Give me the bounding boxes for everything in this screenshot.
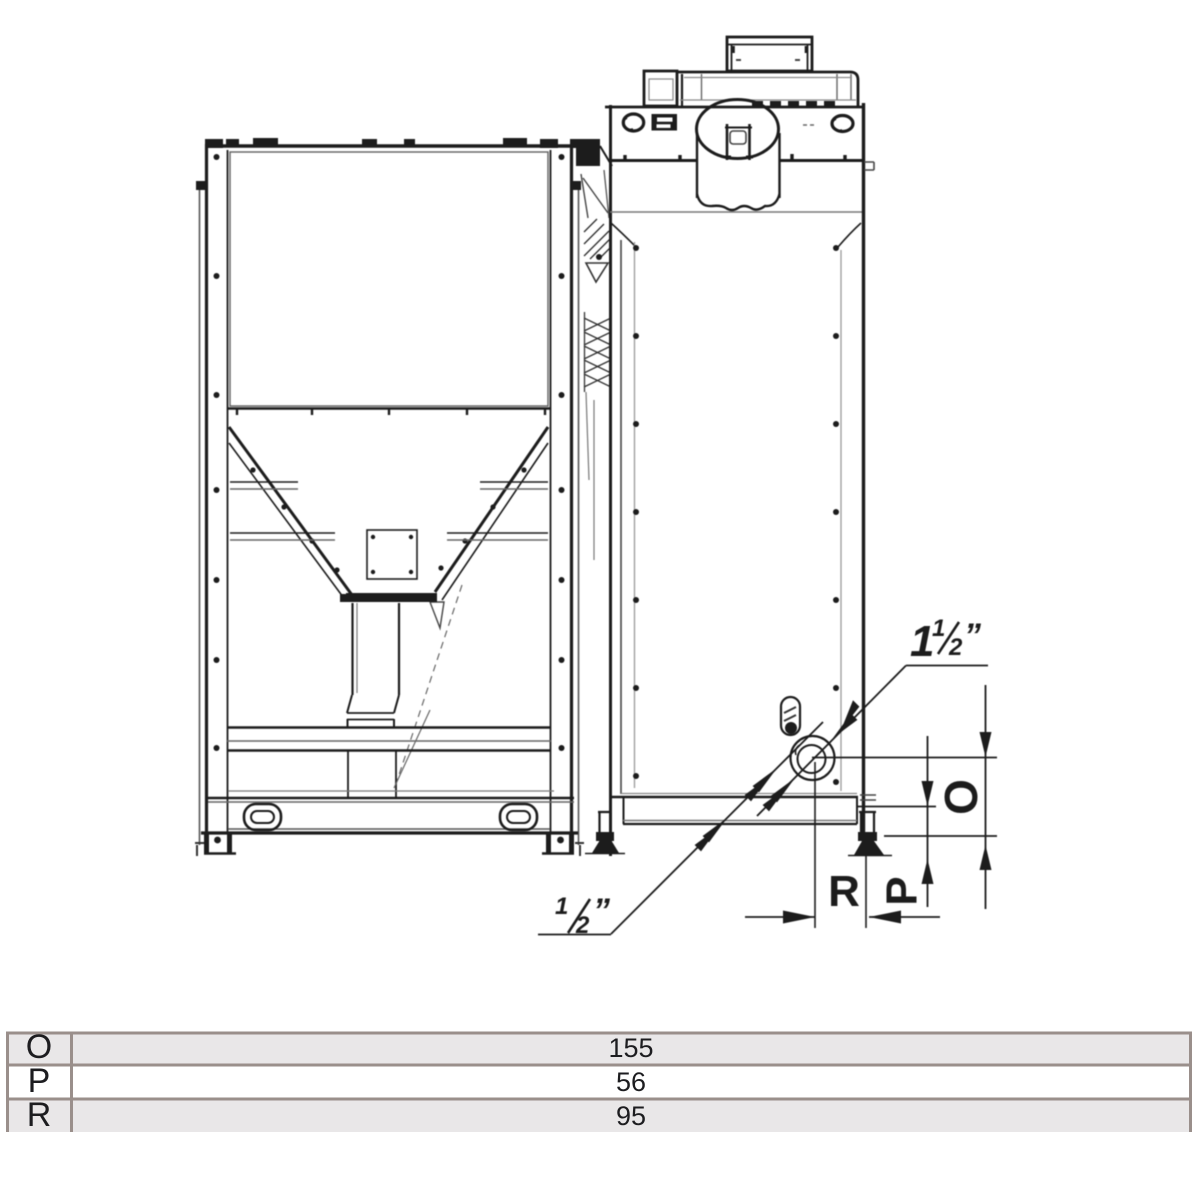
- svg-text:O: O: [935, 779, 987, 815]
- svg-text:1: 1: [910, 617, 934, 666]
- svg-text:P: P: [878, 876, 927, 905]
- svg-text:”: ”: [593, 892, 610, 930]
- svg-text:R: R: [828, 867, 860, 916]
- svg-text:95: 95: [616, 1101, 646, 1131]
- svg-text:R: R: [27, 1096, 52, 1134]
- svg-text:155: 155: [608, 1033, 653, 1063]
- svg-text:O: O: [26, 1028, 52, 1066]
- svg-text:P: P: [28, 1062, 51, 1100]
- svg-text:”: ”: [964, 617, 981, 655]
- svg-text:2: 2: [948, 634, 963, 661]
- svg-text:56: 56: [616, 1067, 646, 1097]
- svg-text:2: 2: [575, 912, 590, 939]
- svg-text:1: 1: [555, 893, 568, 920]
- svg-text:1: 1: [932, 615, 945, 642]
